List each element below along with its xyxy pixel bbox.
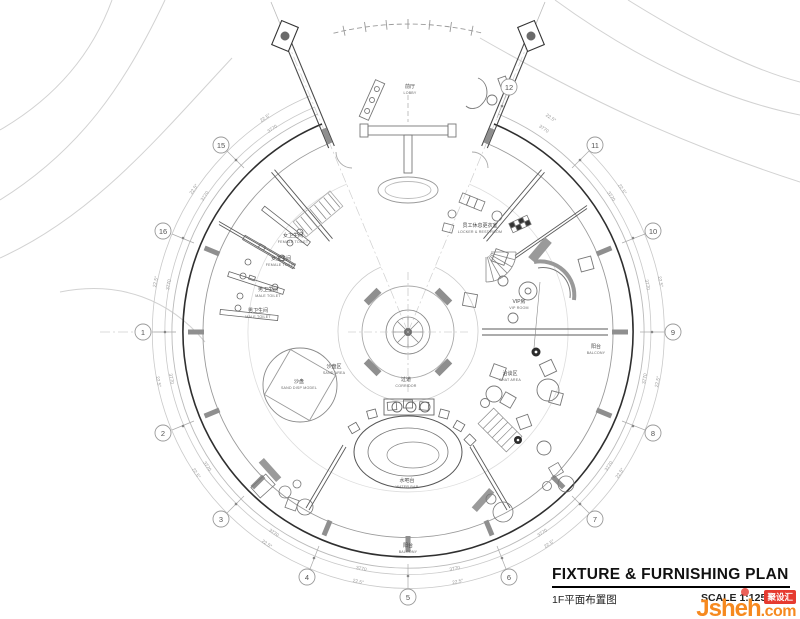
dim-length: 3770 <box>167 373 175 385</box>
dim-angle: 22.5° <box>654 376 662 388</box>
grid-bubble-label: 8 <box>651 429 655 438</box>
dim-angle: 22.5° <box>352 578 364 586</box>
balcony-furniture <box>251 458 574 522</box>
interior-walls <box>219 170 608 510</box>
grid-bubble-label: 12 <box>505 83 513 92</box>
room-label-male-toilet2-zh: 男卫生间 <box>248 307 268 314</box>
room-label-female-toilet-zh: 女卫生间 <box>283 232 303 239</box>
grid-centerlines <box>100 36 531 332</box>
vip-room-furniture <box>462 249 593 357</box>
room-label-vip-zh: VIP房 <box>512 298 525 305</box>
dim-angle: 22.5° <box>656 276 664 288</box>
logo-name: Jsheh <box>696 595 760 619</box>
floor-plan-drawing: 1 2 3 4 5 6 7 8 9 10 11 12 15 16 3770 22… <box>0 0 800 619</box>
chat-area-furniture <box>478 359 563 455</box>
room-label-female-toilet2-zh: 女卫生间 <box>271 255 291 262</box>
dim-length: 3770 <box>641 373 649 385</box>
dim-angle: 22.5° <box>154 376 162 388</box>
grid-bubble-label: 9 <box>671 328 675 337</box>
grid-bubble-label: 11 <box>591 141 599 150</box>
dim-angle: 22.5° <box>189 183 200 196</box>
room-label-balcony-right-zh: 阳台 <box>591 343 601 350</box>
dim-length: 3770 <box>266 124 278 135</box>
room-label-sand-area-zh: 沙盘区 <box>326 363 341 370</box>
room-label-male-toilet-en: MALE TOILET <box>255 294 281 298</box>
room-label-water-bar-en: WATER BAR <box>396 485 419 489</box>
logo-badge: 聚设汇 <box>764 590 796 604</box>
dim-length: 3770 <box>537 124 549 135</box>
dim-length: 3770 <box>605 190 616 202</box>
water-bar <box>348 400 476 488</box>
dim-angle: 22.5° <box>452 578 464 586</box>
entry-column-left <box>272 21 299 52</box>
dim-angle: 22.5° <box>259 112 272 123</box>
room-label-water-bar-zh: 水吧台 <box>399 477 414 484</box>
lobby-planter <box>359 80 384 121</box>
stair-spiral <box>486 252 516 282</box>
room-label-balcony-bottom-en: BALCONY <box>399 550 418 554</box>
room-label-balcony-bottom-zh: 阳台 <box>403 542 413 549</box>
room-label-sand-model-en: SAND DISP MODEL <box>281 386 317 390</box>
compass-rosette <box>348 272 468 392</box>
dim-angle: 22.5° <box>544 113 557 124</box>
grid-bubble-label: 5 <box>406 593 410 602</box>
central-core <box>348 272 468 392</box>
lobby-curved-bench <box>466 78 487 108</box>
room-label-locker-en: LOCKER & REST ROOM <box>458 230 502 234</box>
chaise-lounge <box>478 408 522 452</box>
room-label-sand-area-en: SAND AREA <box>323 371 346 375</box>
drawing-subtitle: 1F平面布置图 <box>552 592 617 607</box>
dim-angle: 22.5° <box>543 538 556 549</box>
entrance-glazing <box>334 19 483 36</box>
room-label-sand-model-zh: 沙盘 <box>294 378 304 385</box>
drawing-sheet: 1 2 3 4 5 6 7 8 9 10 11 12 15 16 3770 22… <box>0 0 800 619</box>
grid-bubble-label: 16 <box>159 227 167 236</box>
room-label-male-toilet-zh: 男卫生间 <box>258 286 278 293</box>
room-label-corridor-zh: 过道 <box>401 376 411 383</box>
bar-stools <box>348 400 476 446</box>
dim-angle: 22.5° <box>152 276 160 288</box>
room-label-corridor-en: CORRIDOR <box>395 384 416 388</box>
dim-length: 3770 <box>643 279 651 291</box>
entry-column-right <box>518 21 545 52</box>
grid-bubble-label: 2 <box>161 429 165 438</box>
room-label-lobby-zh: 前厅 <box>405 83 415 90</box>
room-label-balcony-right-en: BALCONY <box>587 351 606 355</box>
room-label-lobby-en: LOBBY <box>404 91 417 95</box>
logo-tld: .com <box>761 603 796 619</box>
room-label-chat-zh: 洽谈区 <box>502 370 517 377</box>
drawing-title: FIXTURE & FURNISHING PLAN <box>552 566 790 588</box>
room-label-vip-en: VIP ROOM <box>509 306 529 310</box>
room-label-chat-en: CHAT AREA <box>499 378 521 382</box>
grid-bubble-label: 1 <box>141 328 145 337</box>
grid-bubble-label: 6 <box>507 573 511 582</box>
grid-bubble-label: 4 <box>305 573 309 582</box>
dim-angle: 22.5° <box>190 467 201 480</box>
dim-length: 3770 <box>165 279 173 291</box>
grid-bubble-label: 10 <box>649 227 657 236</box>
room-label-locker-zh: 员工休息更衣室 <box>462 222 497 229</box>
grid-bubble-label: 15 <box>217 141 225 150</box>
watermark-logo: Jsheh.com 聚设汇 <box>684 595 796 619</box>
dim-length: 3770 <box>449 565 461 573</box>
dim-angle: 22.5° <box>616 183 627 196</box>
reception-desk <box>368 126 448 135</box>
room-label-female-toilet-en: FEMALE TOILET <box>278 240 309 244</box>
dim-length: 3770 <box>355 565 367 573</box>
stair-left <box>293 191 343 237</box>
sand-table <box>263 348 337 422</box>
dim-angle: 22.5° <box>615 467 626 480</box>
room-label-male-toilet2-en: MALE TOILET <box>245 315 271 319</box>
grid-bubble-label: 7 <box>593 515 597 524</box>
grid-bubble-label: 3 <box>219 515 223 524</box>
site-contours <box>0 0 800 342</box>
room-label-female-toilet2-en: FEMALE TOILET <box>266 263 297 267</box>
